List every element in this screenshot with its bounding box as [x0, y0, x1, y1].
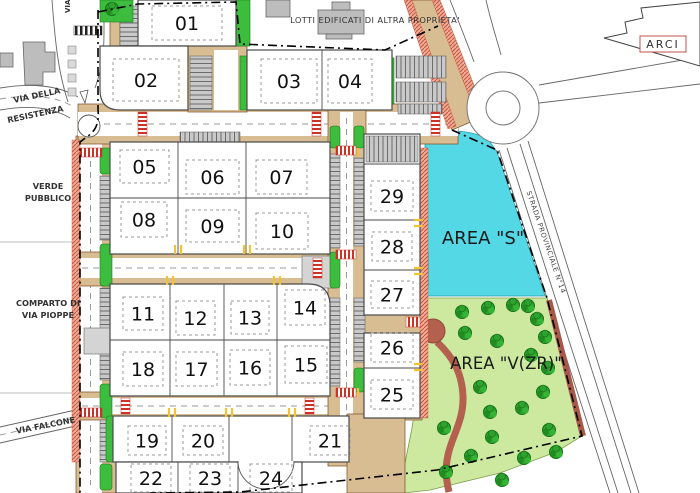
lot-number-23: 23: [198, 468, 222, 490]
lot-number-24: 24: [259, 468, 283, 490]
traffic-island: [80, 90, 88, 103]
street-label-via: VIA: [64, 0, 72, 13]
lot-number-21: 21: [318, 431, 342, 453]
lot-number-09: 09: [200, 216, 224, 238]
building: [0, 53, 13, 67]
lot-number-05: 05: [132, 157, 156, 179]
lot-number-22: 22: [139, 468, 163, 490]
lot-number-27: 27: [380, 285, 404, 307]
label-pubblico: PUBBLICO: [25, 193, 71, 203]
lot-number-25: 25: [380, 385, 404, 407]
big-roundabout-island: [486, 91, 520, 125]
lot-number-18: 18: [131, 359, 155, 381]
arci-building: [604, 2, 700, 66]
note-lotti-edificati: LOTTI EDIFICATI DI ALTRA PROPRIETA': [290, 15, 460, 25]
lot-number-14: 14: [293, 298, 317, 320]
label-verde: VERDE: [33, 181, 64, 191]
building: [23, 42, 55, 85]
lot-number-26: 26: [380, 338, 404, 360]
lot-number-03: 03: [277, 71, 301, 93]
lot-number-06: 06: [200, 167, 224, 189]
site-plan-map: 0102030405060708091011121314151617181920…: [0, 0, 700, 493]
street-label-via-della: VIA DELLA: [12, 85, 61, 105]
street-label-resistenza: RESISTENZA: [6, 103, 65, 125]
arci-label: ARCI: [646, 38, 680, 51]
area-s-zone: [425, 131, 545, 296]
area-label-vzr: AREA "V(ZR)": [450, 354, 562, 373]
label-via-pioppe: VIA PIOPPE: [22, 310, 74, 320]
lot-number-04: 04: [338, 71, 362, 93]
label-comparto: COMPARTO DI: [16, 298, 80, 308]
lot-number-28: 28: [380, 237, 404, 259]
lot-number-12: 12: [183, 308, 207, 330]
paved-plaza-west: [84, 328, 112, 354]
lot-number-16: 16: [238, 358, 262, 380]
sidewalk-east: [420, 148, 428, 418]
lot-number-07: 07: [269, 167, 293, 189]
lot-number-17: 17: [184, 359, 208, 381]
lot-number-19: 19: [135, 431, 159, 453]
lot-number-29: 29: [380, 186, 404, 208]
lot-number-11: 11: [131, 304, 155, 326]
lot-number-13: 13: [238, 308, 262, 330]
lot-number-20: 20: [191, 431, 215, 453]
lot-number-01: 01: [175, 13, 199, 35]
building: [266, 0, 290, 17]
lot-number-15: 15: [294, 355, 318, 377]
lot-number-02: 02: [134, 70, 158, 92]
site-plan-svg: 0102030405060708091011121314151617181920…: [0, 0, 700, 493]
park-area-vzr: [404, 298, 583, 493]
lot-number-10: 10: [270, 221, 294, 243]
area-label-s: AREA "S": [442, 228, 524, 249]
lot-number-08: 08: [132, 210, 156, 232]
